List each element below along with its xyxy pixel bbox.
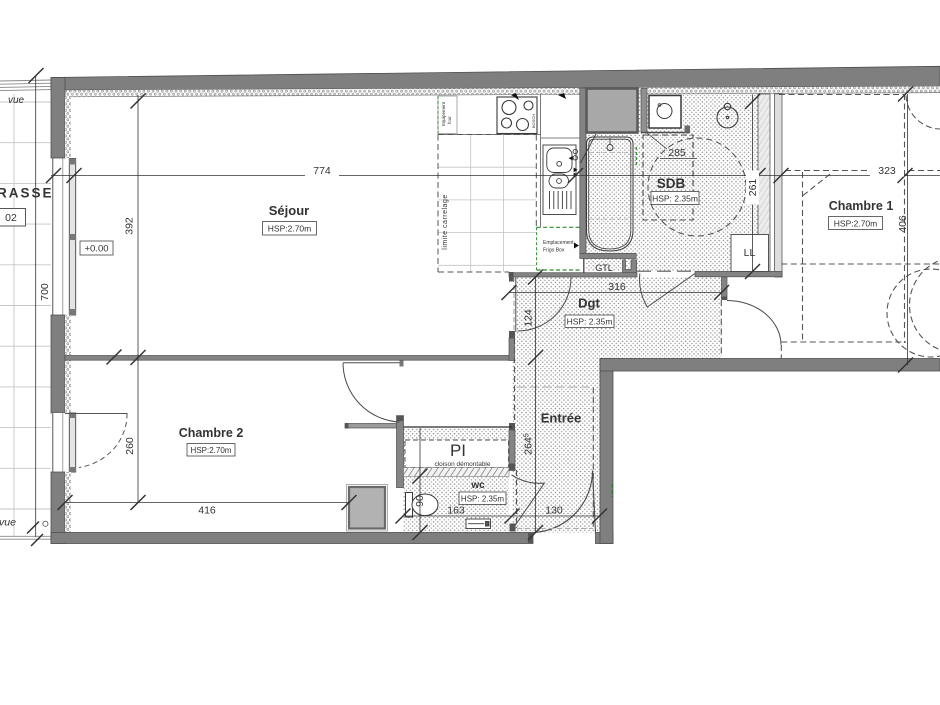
svg-text:HSP: 2.35m: HSP: 2.35m bbox=[461, 495, 504, 504]
svg-text:323: 323 bbox=[878, 165, 896, 177]
svg-text:316: 316 bbox=[608, 281, 626, 293]
svg-text:Séjour: Séjour bbox=[269, 203, 309, 218]
svg-text:392: 392 bbox=[124, 217, 136, 235]
svg-text:260: 260 bbox=[124, 437, 136, 455]
svg-text:Equipement: Equipement bbox=[441, 101, 446, 126]
svg-text:Dgt: Dgt bbox=[578, 296, 600, 311]
svg-text:HSP:2.70m: HSP:2.70m bbox=[268, 224, 311, 234]
svg-text:02: 02 bbox=[5, 212, 17, 224]
svg-text:cloison démontable: cloison démontable bbox=[434, 461, 490, 468]
svg-text:90: 90 bbox=[414, 495, 426, 507]
svg-text:LL: LL bbox=[744, 247, 756, 259]
svg-text:HSP:2.70m: HSP:2.70m bbox=[834, 219, 877, 229]
svg-text:vue: vue bbox=[0, 517, 16, 529]
svg-text:416: 416 bbox=[198, 505, 216, 517]
svg-text:Frigo Box: Frigo Box bbox=[543, 248, 565, 254]
svg-text:285: 285 bbox=[668, 147, 686, 159]
svg-text:700: 700 bbox=[39, 283, 51, 301]
svg-text:HSP:2.70m: HSP:2.70m bbox=[191, 446, 232, 455]
svg-text:HSP: 2.35m: HSP: 2.35m bbox=[567, 317, 613, 327]
svg-text:Entrée: Entrée bbox=[541, 411, 581, 426]
svg-text:124: 124 bbox=[523, 309, 535, 327]
svg-text:Emplacement: Emplacement bbox=[543, 240, 574, 246]
svg-text:261: 261 bbox=[747, 179, 759, 197]
svg-text:BOSCH: BOSCH bbox=[531, 114, 536, 128]
svg-text:+0.00: +0.00 bbox=[84, 244, 108, 255]
svg-text:SDB: SDB bbox=[657, 176, 686, 191]
svg-text:Chambre 1: Chambre 1 bbox=[829, 199, 894, 213]
svg-text:TERRASSE: TERRASSE bbox=[0, 186, 54, 201]
svg-text:GTL: GTL bbox=[595, 263, 613, 273]
svg-text:four: four bbox=[447, 116, 452, 124]
svg-text:406: 406 bbox=[897, 215, 909, 233]
svg-text:163: 163 bbox=[447, 505, 465, 517]
svg-text:limite carrelage: limite carrelage bbox=[442, 194, 449, 249]
svg-text:wc: wc bbox=[470, 480, 485, 491]
svg-text:Chambre 2: Chambre 2 bbox=[179, 426, 244, 440]
svg-text:HSP: 2.35m: HSP: 2.35m bbox=[652, 194, 698, 204]
svg-text:vue: vue bbox=[8, 95, 25, 106]
svg-text:130: 130 bbox=[545, 505, 563, 517]
svg-text:PI: PI bbox=[450, 441, 466, 460]
svg-text:774: 774 bbox=[313, 165, 331, 177]
